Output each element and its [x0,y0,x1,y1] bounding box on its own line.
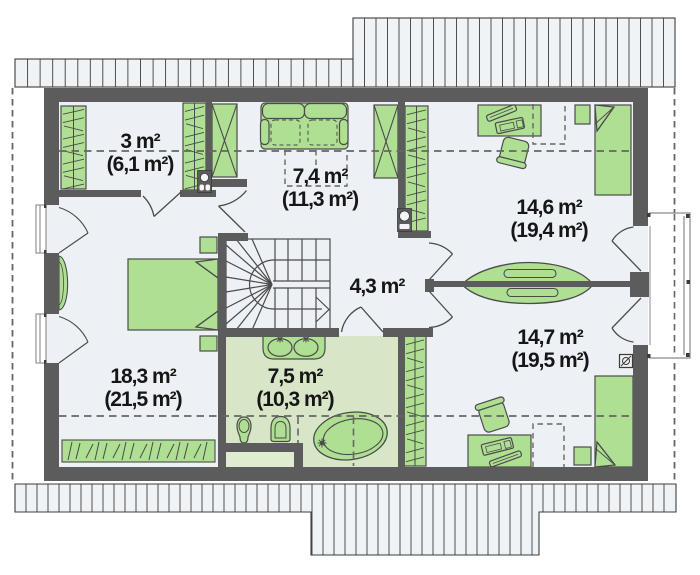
svg-text:3 m²: 3 m² [120,130,160,153]
svg-text:7,4 m²: 7,4 m² [293,165,349,188]
svg-text:14,6 m²: 14,6 m² [516,196,582,219]
svg-text:(19,5 m²): (19,5 m²) [511,349,588,372]
svg-text:(21,5 m²): (21,5 m²) [104,388,181,411]
svg-text:4,3 m²: 4,3 m² [350,275,406,298]
svg-text:(11,3 m²): (11,3 m²) [282,188,358,211]
svg-text:(6,1 m²): (6,1 m²) [107,153,174,176]
svg-text:18,3 m²: 18,3 m² [110,365,176,388]
svg-text:(19,4 m²): (19,4 m²) [510,219,587,242]
svg-text:7,5 m²: 7,5 m² [268,365,324,388]
svg-text:14,7 m²: 14,7 m² [517,326,583,349]
svg-text:(10,3 m²): (10,3 m²) [256,388,333,411]
